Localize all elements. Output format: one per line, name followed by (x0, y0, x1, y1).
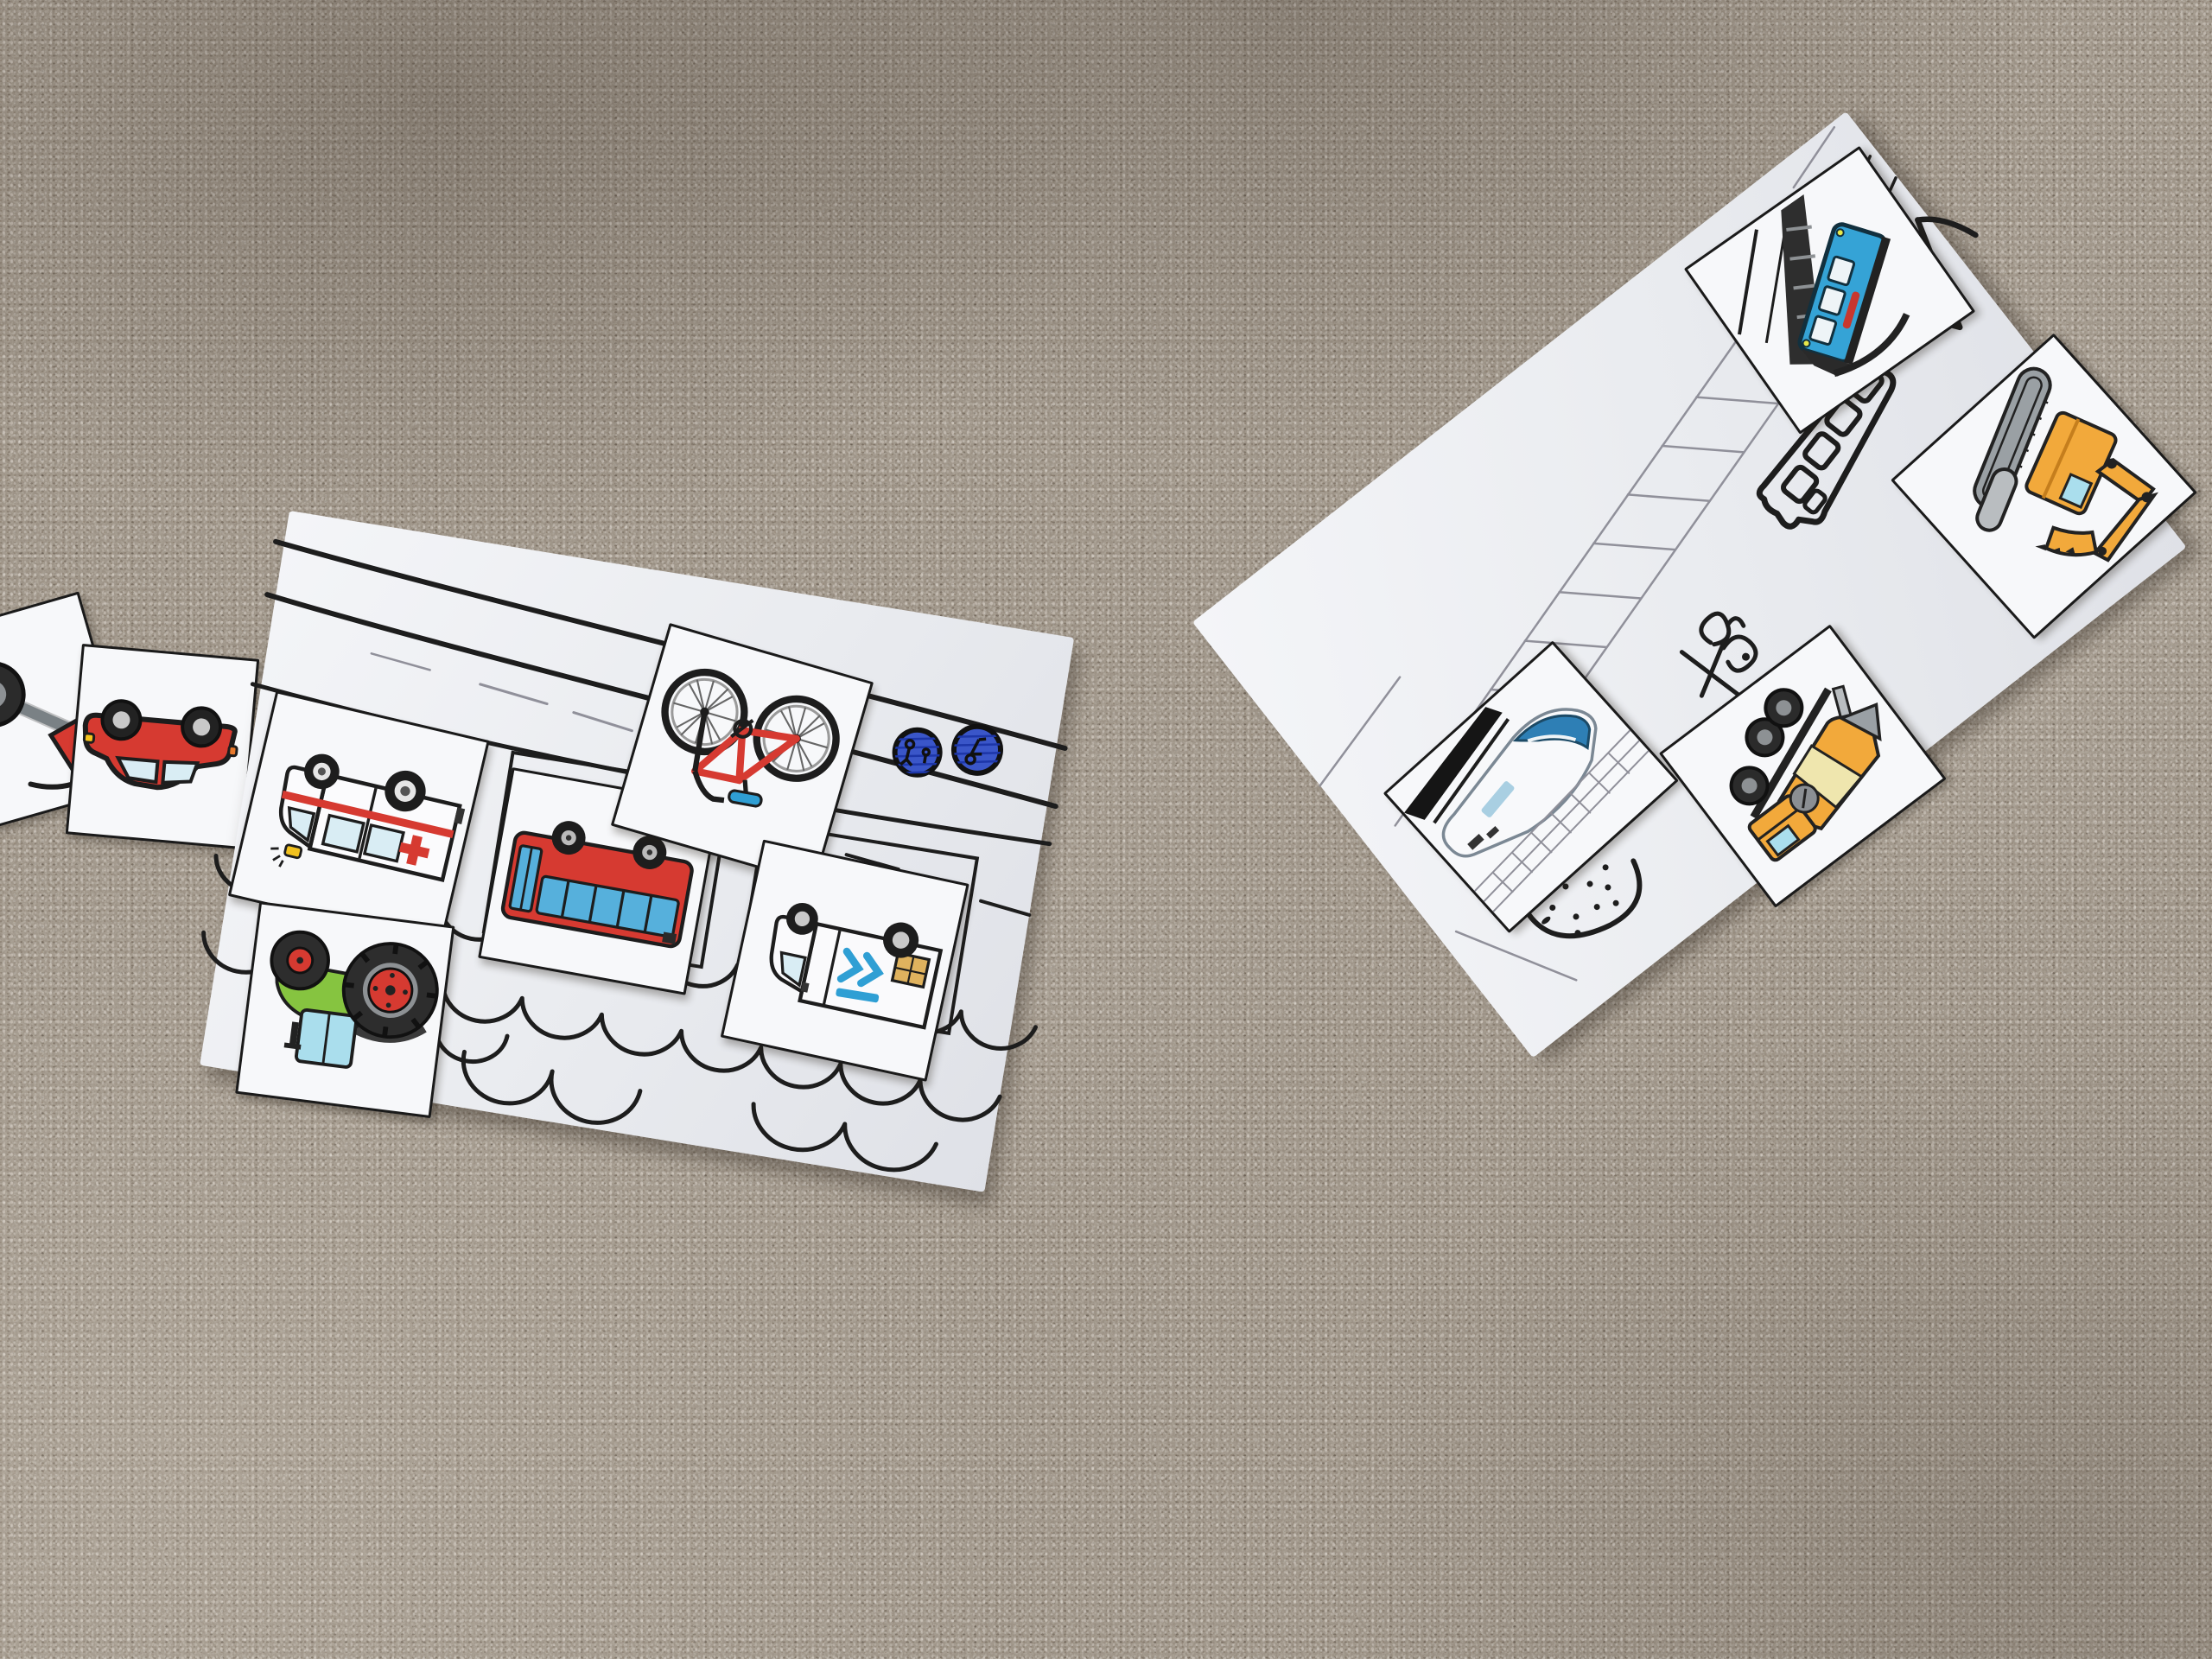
red-car-illustration (68, 646, 257, 847)
excavator-body (2024, 410, 2118, 515)
saddle (728, 790, 762, 807)
delivery-van-illustration (723, 842, 966, 1078)
photo-stage (0, 0, 2212, 1659)
pedestrian-sign-icon (892, 727, 944, 779)
tractor-illustration (238, 905, 453, 1116)
headlight (84, 734, 94, 743)
pencil-center-dashes (365, 653, 637, 730)
side-window (365, 825, 404, 861)
light (1802, 339, 1811, 347)
tractor-card (235, 901, 454, 1118)
ladder (1834, 686, 1851, 717)
tail-light (228, 746, 237, 756)
car-window (162, 760, 197, 785)
siren-light (284, 844, 302, 858)
bucket (2039, 511, 2104, 575)
red-car-card (66, 644, 259, 849)
delivery-van-card (721, 840, 969, 1082)
side-window (323, 816, 364, 852)
light (1836, 228, 1845, 237)
